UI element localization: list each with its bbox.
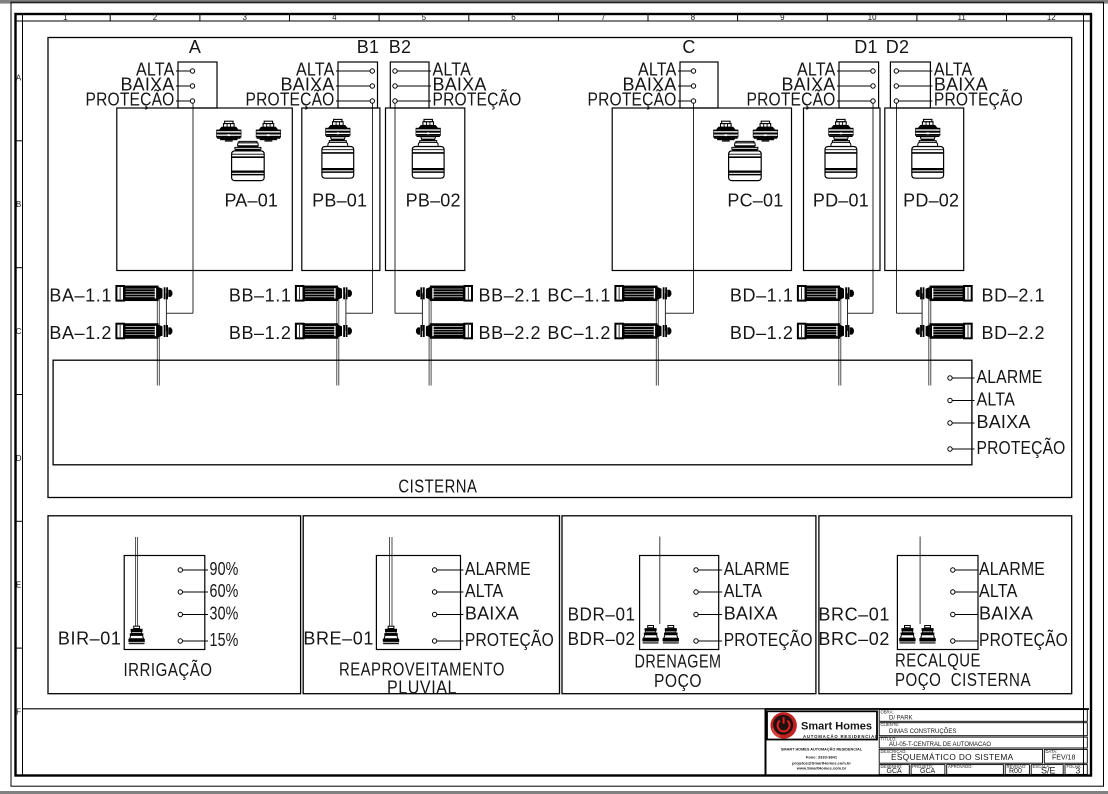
svg-text:BB–1.2: BB–1.2 xyxy=(229,323,292,343)
svg-text:PROTEÇÃO: PROTEÇÃO xyxy=(433,89,522,110)
svg-text:A: A xyxy=(16,73,22,82)
svg-text:GCA: GCA xyxy=(920,768,936,775)
svg-text:PLUVIAL: PLUVIAL xyxy=(387,678,457,698)
svg-text:R00: R00 xyxy=(1009,768,1022,775)
svg-text:BD–2.2: BD–2.2 xyxy=(982,323,1046,343)
svg-text:AU-05-T-CENTRAL DE AUTOMACAO: AU-05-T-CENTRAL DE AUTOMACAO xyxy=(889,742,991,748)
svg-text:PD–01: PD–01 xyxy=(813,191,869,211)
svg-text:Smart Homes: Smart Homes xyxy=(801,721,872,733)
svg-text:DATA:: DATA: xyxy=(1046,749,1058,754)
svg-text:10: 10 xyxy=(868,13,877,22)
svg-text:ALARME: ALARME xyxy=(465,559,531,579)
svg-text:REAPROVEITAMENTO: REAPROVEITAMENTO xyxy=(339,660,505,680)
svg-text:POÇO: POÇO xyxy=(654,671,702,691)
svg-text:CISTERNA: CISTERNA xyxy=(398,476,477,496)
svg-text:4: 4 xyxy=(332,13,337,22)
svg-text:D2: D2 xyxy=(886,37,909,57)
svg-text:PB–01: PB–01 xyxy=(312,191,367,211)
svg-text:PROTEÇÃO: PROTEÇÃO xyxy=(724,629,813,650)
svg-text:BAIXA: BAIXA xyxy=(979,604,1033,624)
svg-text:PROTEÇÃO: PROTEÇÃO xyxy=(934,89,1023,110)
svg-text:11: 11 xyxy=(958,13,967,22)
svg-text:6: 6 xyxy=(511,13,516,22)
svg-text:PROTEÇÃO: PROTEÇÃO xyxy=(246,89,335,110)
svg-text:PD–02: PD–02 xyxy=(903,191,959,211)
svg-text:BC–1.1: BC–1.1 xyxy=(547,285,611,305)
svg-text:ALTA: ALTA xyxy=(979,581,1018,601)
svg-text:ALTA: ALTA xyxy=(465,581,504,601)
svg-text:E: E xyxy=(16,581,21,590)
svg-text:8: 8 xyxy=(691,13,696,22)
svg-text:PC–01: PC–01 xyxy=(727,191,783,211)
svg-text:3: 3 xyxy=(1076,766,1081,776)
svg-text:BD–2.1: BD–2.1 xyxy=(982,285,1046,305)
svg-text:PB–02: PB–02 xyxy=(406,191,461,211)
svg-text:PROTEÇÃO: PROTEÇÃO xyxy=(86,89,175,110)
svg-text:BB–2.1: BB–2.1 xyxy=(479,285,542,305)
svg-text:RECALQUE: RECALQUE xyxy=(895,651,981,671)
svg-text:APROVADO:: APROVADO: xyxy=(948,764,973,769)
svg-text:PROTEÇÃO: PROTEÇÃO xyxy=(977,437,1066,458)
svg-text:7: 7 xyxy=(601,13,606,22)
svg-text:9: 9 xyxy=(780,13,785,22)
svg-text:BAIXA: BAIXA xyxy=(977,412,1031,432)
svg-text:B: B xyxy=(16,200,21,209)
svg-text:A: A xyxy=(189,37,201,57)
svg-text:ALARME: ALARME xyxy=(724,559,790,579)
svg-text:C: C xyxy=(682,37,695,57)
svg-text:CLIENTE:: CLIENTE: xyxy=(881,722,900,727)
svg-text:BD–1.2: BD–1.2 xyxy=(730,323,794,343)
svg-text:15%: 15% xyxy=(210,630,239,650)
svg-text:BA–1.1: BA–1.1 xyxy=(49,285,112,305)
svg-text:BDR–01: BDR–01 xyxy=(568,605,636,625)
svg-text:SMART HOMES AUTOMAÇÃO RESIDENC: SMART HOMES AUTOMAÇÃO RESIDENCIAL xyxy=(781,747,863,752)
svg-text:DRENAGEM: DRENAGEM xyxy=(635,652,722,672)
svg-text:ESQUEMÁTICO DO SISTEMA: ESQUEMÁTICO DO SISTEMA xyxy=(891,752,1014,762)
svg-text:BC–1.2: BC–1.2 xyxy=(547,323,611,343)
svg-text:D/ PARK: D/ PARK xyxy=(889,716,913,722)
svg-text:BAIXA: BAIXA xyxy=(724,604,778,624)
svg-text:PROTEÇÃO: PROTEÇÃO xyxy=(465,629,554,650)
svg-text:S/E: S/E xyxy=(1041,766,1056,776)
svg-text:1: 1 xyxy=(63,13,68,22)
svg-text:BDR–02: BDR–02 xyxy=(568,629,636,649)
svg-text:ALARME: ALARME xyxy=(979,559,1045,579)
svg-text:Fone: 3333-3841: Fone: 3333-3841 xyxy=(806,754,838,759)
svg-text:IRRIGAÇÃO: IRRIGAÇÃO xyxy=(124,659,213,680)
svg-text:12: 12 xyxy=(1047,13,1056,22)
svg-text:OBRA:: OBRA: xyxy=(881,710,894,715)
svg-text:60%: 60% xyxy=(210,581,239,601)
svg-text:PA–01: PA–01 xyxy=(224,191,278,211)
svg-text:ALTA: ALTA xyxy=(977,390,1016,410)
svg-text:BAIXA: BAIXA xyxy=(465,604,519,624)
svg-text:5: 5 xyxy=(422,13,427,22)
svg-text:D: D xyxy=(16,454,22,463)
svg-text:DIMAS CONSTRUÇÕES: DIMAS CONSTRUÇÕES xyxy=(889,728,956,735)
svg-text:AUTOMAÇÃO RESIDENCIAL: AUTOMAÇÃO RESIDENCIAL xyxy=(803,734,878,739)
svg-text:PROTEÇÃO: PROTEÇÃO xyxy=(747,89,836,110)
svg-text:GCA: GCA xyxy=(887,768,903,775)
svg-text:BIR–01: BIR–01 xyxy=(58,629,122,649)
svg-text:BA–1.2: BA–1.2 xyxy=(49,323,112,343)
svg-text:TITULO:: TITULO: xyxy=(881,737,897,742)
svg-text:BRC–01: BRC–01 xyxy=(818,605,890,625)
svg-text:90%: 90% xyxy=(210,559,239,579)
svg-text:D1: D1 xyxy=(854,37,877,57)
svg-text:FEV/18: FEV/18 xyxy=(1052,755,1075,762)
svg-text:B1: B1 xyxy=(357,37,379,57)
svg-text:B2: B2 xyxy=(389,37,411,57)
svg-text:2: 2 xyxy=(153,13,158,22)
svg-text:BB–1.1: BB–1.1 xyxy=(229,285,292,305)
svg-text:BB–2.2: BB–2.2 xyxy=(479,323,542,343)
svg-text:PROTEÇÃO: PROTEÇÃO xyxy=(588,89,677,110)
svg-text:3: 3 xyxy=(242,13,247,22)
svg-text:C: C xyxy=(16,327,22,336)
svg-text:BRC–02: BRC–02 xyxy=(818,629,890,649)
svg-text:PROTEÇÃO: PROTEÇÃO xyxy=(979,629,1068,650)
svg-text:POÇO CISTERNA: POÇO CISTERNA xyxy=(895,670,1031,690)
svg-text:F: F xyxy=(16,708,21,717)
svg-text:30%: 30% xyxy=(210,604,239,624)
svg-text:ALARME: ALARME xyxy=(977,367,1043,387)
svg-text:BD–1.1: BD–1.1 xyxy=(730,285,794,305)
svg-text:ALTA: ALTA xyxy=(724,581,763,601)
svg-text:BRE–01: BRE–01 xyxy=(303,629,374,649)
svg-text:www.SmartHomes.com.br: www.SmartHomes.com.br xyxy=(796,765,847,770)
